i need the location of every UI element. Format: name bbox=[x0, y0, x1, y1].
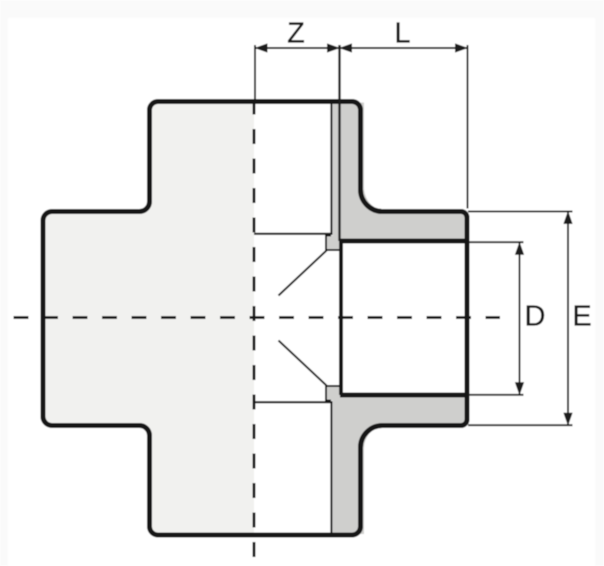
svg-text:D: D bbox=[525, 301, 546, 333]
svg-text:E: E bbox=[572, 301, 591, 333]
svg-text:L: L bbox=[394, 18, 410, 50]
svg-text:Z: Z bbox=[287, 18, 305, 50]
